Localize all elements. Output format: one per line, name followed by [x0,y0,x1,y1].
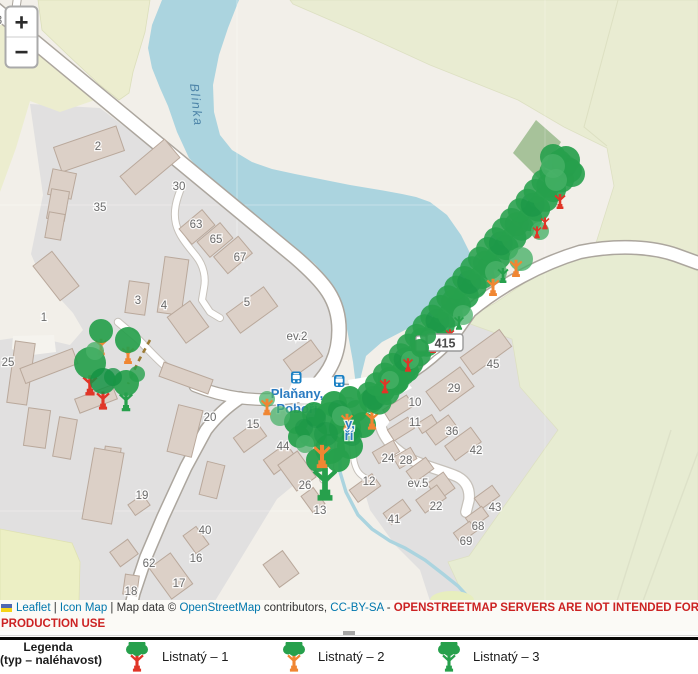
svg-text:63: 63 [190,219,203,231]
svg-text:40: 40 [199,525,212,537]
svg-text:62: 62 [143,558,156,570]
svg-text:19: 19 [136,490,149,502]
svg-text:43: 43 [489,502,502,514]
svg-text:17: 17 [173,578,186,590]
svg-text:20: 20 [204,412,217,424]
svg-text:1: 1 [41,312,47,324]
svg-text:3: 3 [0,15,2,27]
svg-text:15: 15 [247,419,260,431]
svg-text:ří: ří [345,428,354,443]
svg-text:42: 42 [470,445,483,457]
svg-text:69: 69 [460,536,473,548]
svg-text:415: 415 [435,337,456,351]
svg-text:12: 12 [363,476,376,488]
svg-text:65: 65 [210,234,223,246]
svg-text:Plaňany,: Plaňany, [271,386,324,401]
svg-text:ev.2: ev.2 [287,331,308,343]
svg-text:29: 29 [448,383,461,395]
svg-text:ev.5: ev.5 [408,478,429,490]
svg-text:3: 3 [135,295,141,307]
svg-text:13: 13 [314,505,327,517]
svg-text:5: 5 [244,297,250,309]
svg-text:28: 28 [400,455,413,467]
svg-text:16: 16 [190,553,203,565]
svg-text:+: + [14,10,28,37]
svg-text:26: 26 [299,480,312,492]
svg-text:18: 18 [125,586,138,598]
svg-text:45: 45 [487,359,500,371]
svg-text:11: 11 [409,417,421,429]
svg-text:24: 24 [382,453,395,465]
svg-text:2: 2 [95,141,101,153]
svg-text:67: 67 [234,252,247,264]
svg-text:41: 41 [388,514,401,526]
svg-text:30: 30 [173,181,186,193]
svg-text:4: 4 [161,300,168,312]
svg-text:68: 68 [472,521,485,533]
svg-text:22: 22 [430,501,443,513]
svg-text:36: 36 [446,426,459,438]
svg-text:44: 44 [277,441,290,453]
svg-text:35: 35 [94,202,107,214]
svg-text:−: − [14,39,28,66]
svg-text:25: 25 [2,357,15,369]
svg-text:10: 10 [409,397,422,409]
